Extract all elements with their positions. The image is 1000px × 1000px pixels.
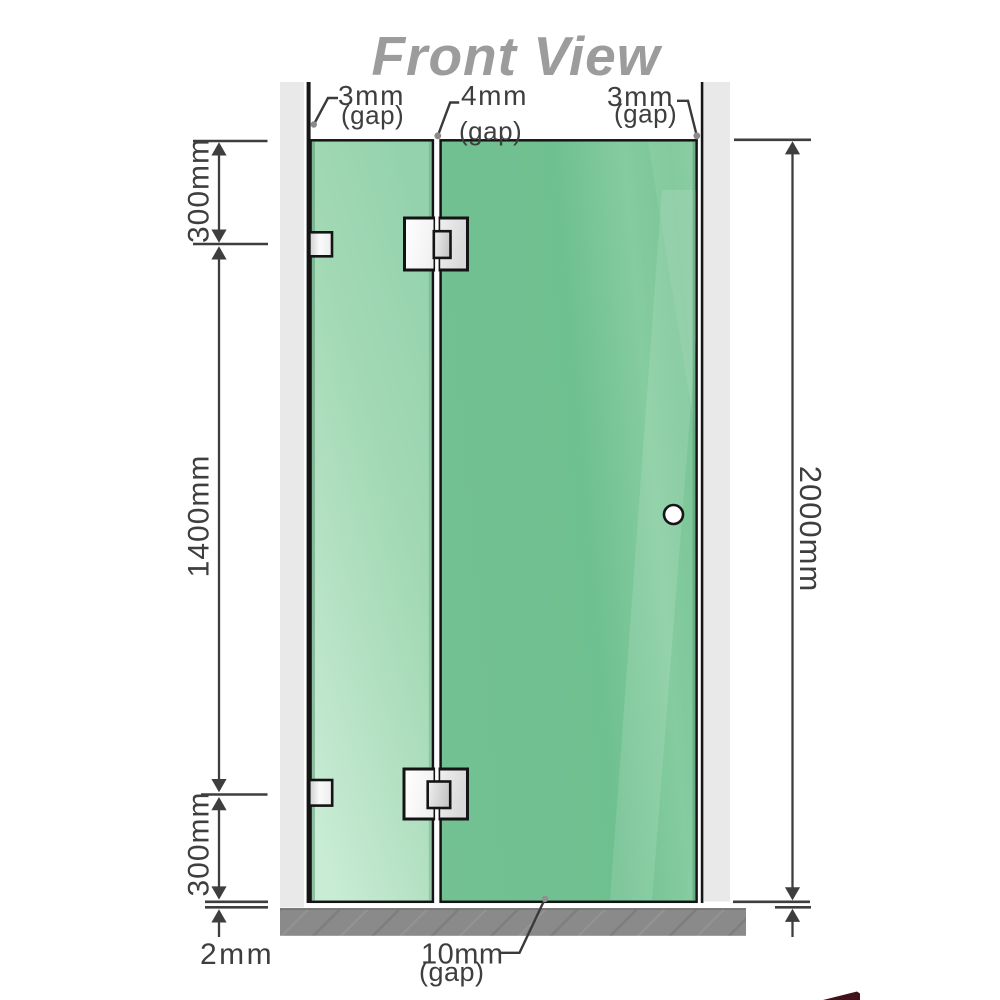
svg-text:(gap): (gap) (459, 116, 522, 146)
svg-text:2mm: 2mm (200, 938, 274, 971)
svg-text:2000mm: 2000mm (793, 466, 828, 593)
svg-text:(gap): (gap) (614, 99, 677, 129)
svg-text:(gap): (gap) (419, 957, 485, 987)
svg-text:Front View: Front View (371, 25, 662, 87)
svg-text:300mm: 300mm (183, 791, 216, 896)
svg-text:1400mm: 1400mm (183, 455, 216, 578)
svg-text:(gap): (gap) (341, 100, 404, 130)
svg-text:4mm: 4mm (461, 80, 528, 111)
svg-text:300mm: 300mm (183, 138, 216, 243)
